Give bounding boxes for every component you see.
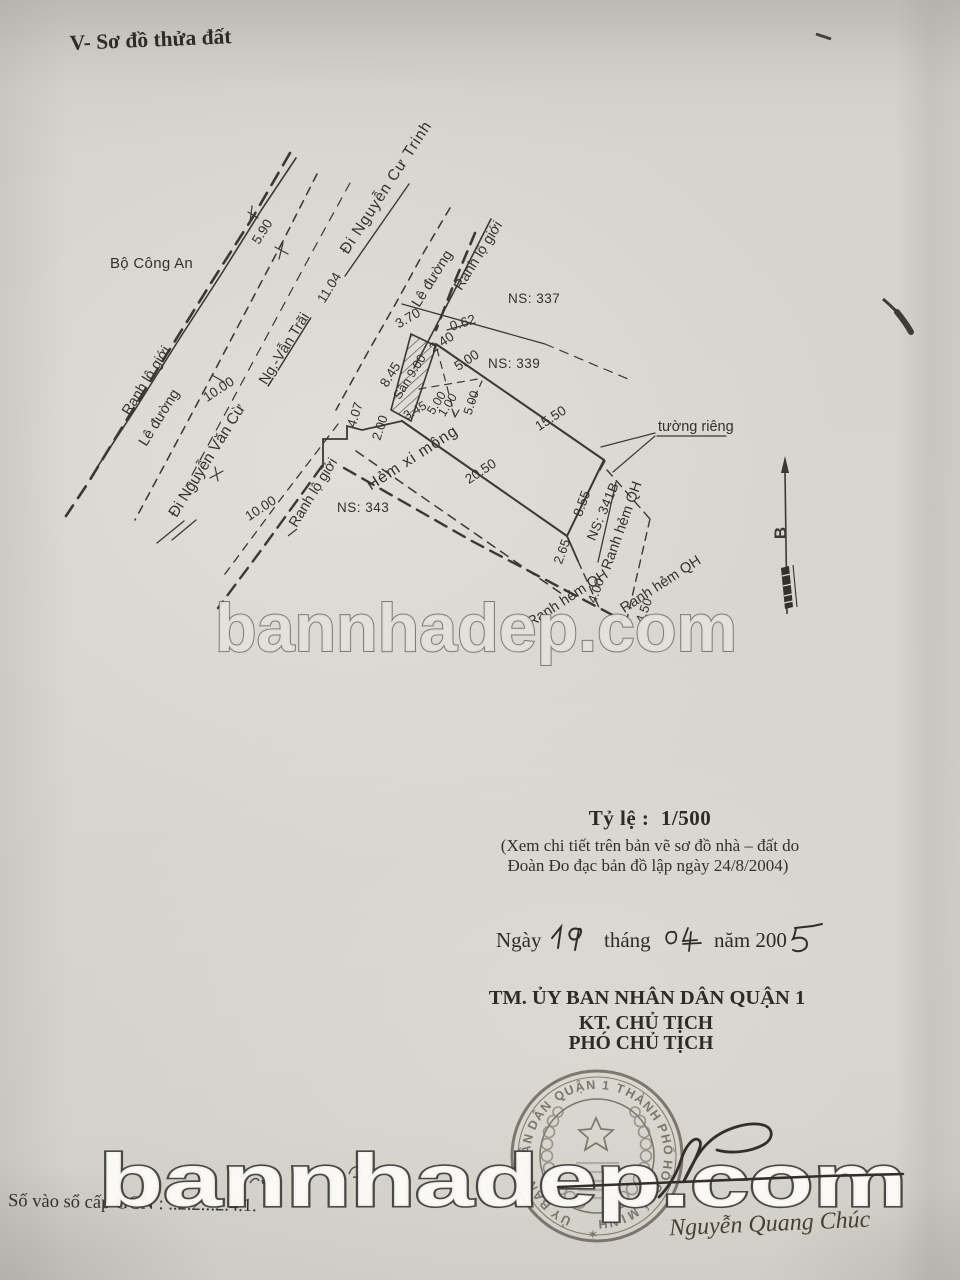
svg-text:(Xem chi tiết trên bản vẽ sơ đ: (Xem chi tiết trên bản vẽ sơ đồ nhà – đấ… [501,836,799,855]
svg-text:KT. CHỦ TỊCH: KT. CHỦ TỊCH [579,1012,713,1034]
svg-text:2.65: 2.65 [550,537,573,566]
svg-text:Đi Nguyễn Văn Cừ: Đi Nguyễn Văn Cừ [165,401,248,520]
svg-text:15.50: 15.50 [532,403,569,434]
svg-text:B: B [771,527,790,539]
svg-text:Ậ: Ậ [574,1078,586,1095]
svg-text:10.00: 10.00 [242,493,279,524]
svg-text:Bộ Công An: Bộ Công An [110,255,193,272]
svg-text:bannhadep.com: bannhadep.com [215,590,737,666]
svg-text:Ranh lộ giới: Ranh lộ giới [451,219,506,294]
svg-text:tường riêng: tường riêng [658,419,734,435]
svg-text:Ng.-Vẫn Trãi: Ng.-Vẫn Trãi [255,310,313,388]
svg-text:tháng: tháng [604,928,651,952]
svg-text:PHÓ CHỦ TỊCH: PHÓ CHỦ TỊCH [569,1032,714,1054]
svg-text:TM. ỦY BAN NHÂN DÂN QUẬN 1: TM. ỦY BAN NHÂN DÂN QUẬN 1 [489,985,805,1009]
svg-text:2.00: 2.00 [369,413,391,442]
svg-text:Ngày: Ngày [496,928,542,952]
svg-text:NS: 337: NS: 337 [508,291,560,306]
svg-text:11.04: 11.04 [314,269,344,305]
svg-text:Đi Nguyễn Cư Trinh: Đi Nguyễn Cư Trinh [337,118,436,257]
svg-text:8.55: 8.55 [570,489,593,519]
svg-text:5.00: 5.00 [461,389,482,417]
svg-text:Đoàn Đo đạc bản đồ lập ngày 24: Đoàn Đo đạc bản đồ lập ngày 24/8/2004) [508,856,789,875]
svg-text:Tỷ lệ : 1/500: Tỷ lệ : 1/500 [589,806,712,830]
svg-text:5.00: 5.00 [451,347,481,374]
svg-text:5.90: 5.90 [249,216,276,246]
svg-text:0.62: 0.62 [448,312,478,334]
svg-text:4.07: 4.07 [344,400,366,429]
svg-text:N: N [586,1078,596,1093]
svg-text:NS: 339: NS: 339 [488,356,540,371]
svg-text:bannhadep.com: bannhadep.com [99,1139,907,1222]
svg-text:V- Sơ đồ thửa đất: V- Sơ đồ thửa đất [69,24,232,55]
svg-text:Ranh lộ giới: Ranh lộ giới [286,456,341,531]
svg-text:năm 200: năm 200 [714,928,787,952]
svg-text:NS: 343: NS: 343 [337,500,389,515]
svg-text:1: 1 [601,1078,610,1093]
svg-text:20.50: 20.50 [462,456,499,487]
svg-text:✶: ✶ [588,1227,599,1242]
